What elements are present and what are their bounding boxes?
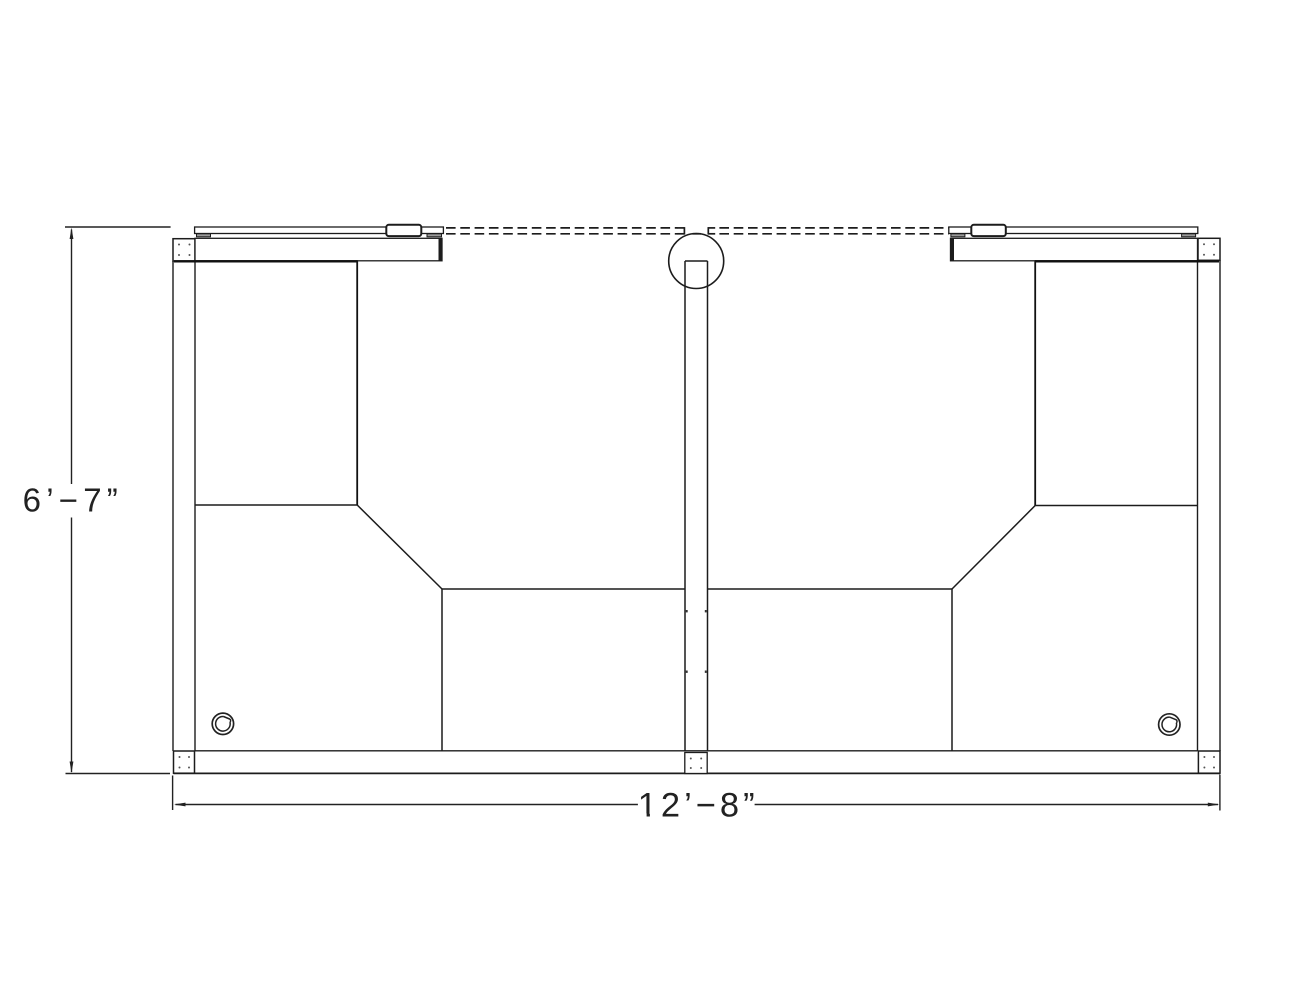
svg-text:12’−8”: 12’−8” xyxy=(638,787,759,825)
svg-text:6’−7”: 6’−7” xyxy=(23,482,123,519)
